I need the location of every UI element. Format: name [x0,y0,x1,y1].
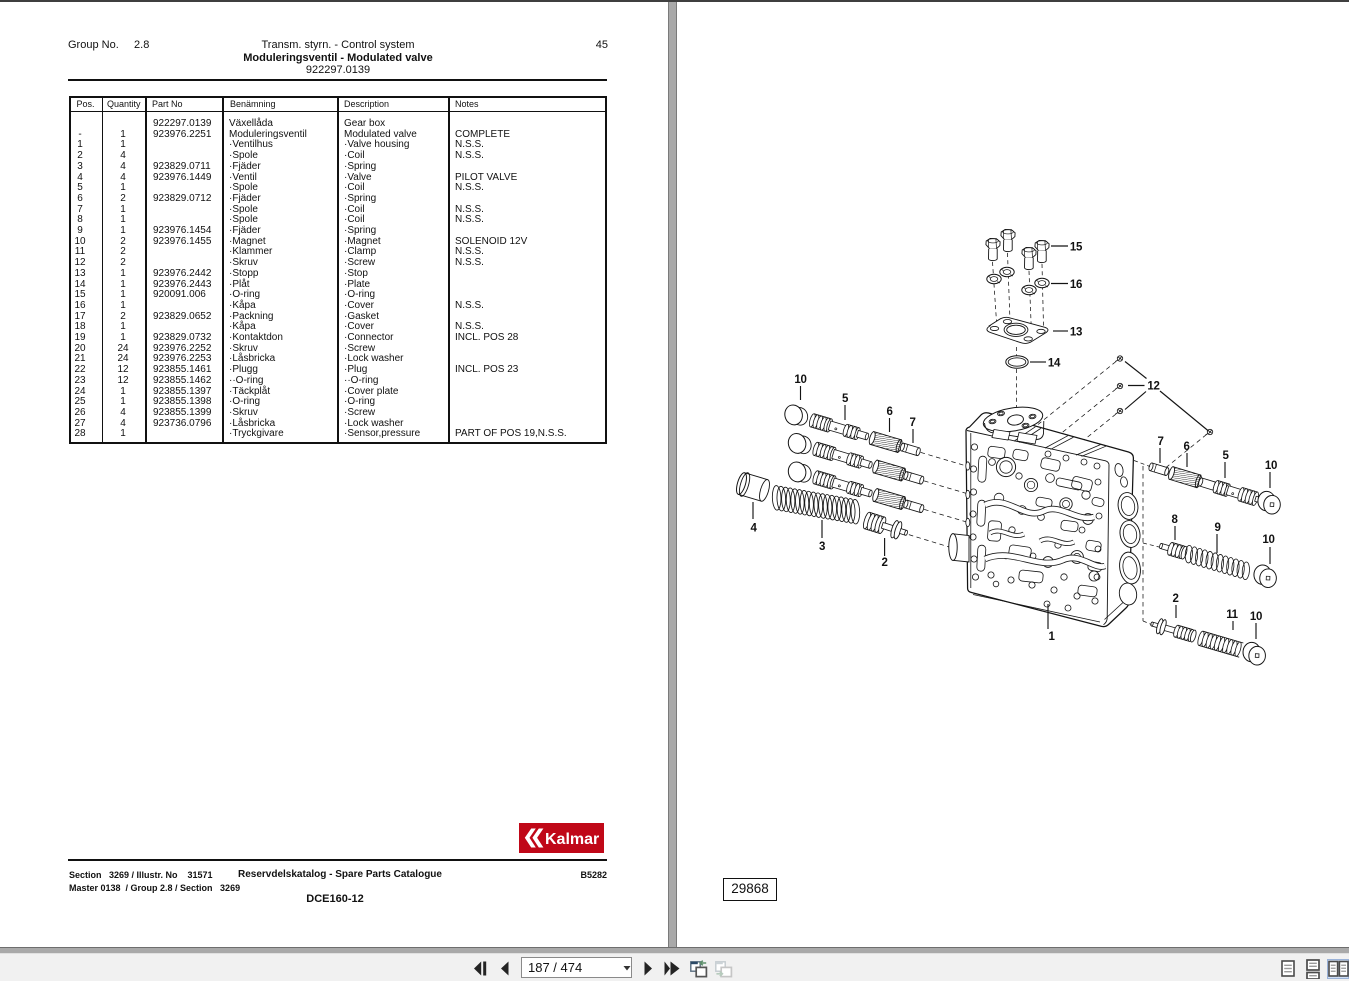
svg-text:9: 9 [1214,522,1220,534]
svg-text:3: 3 [819,541,825,553]
svg-text:12: 12 [1147,381,1159,393]
svg-text:6: 6 [886,406,892,418]
svg-text:10: 10 [1262,534,1274,546]
svg-text:2: 2 [1172,593,1178,605]
svg-text:10: 10 [794,374,806,386]
svg-text:15: 15 [1070,242,1083,254]
svg-text:7: 7 [1157,436,1163,448]
svg-text:8: 8 [1171,514,1178,526]
svg-text:6: 6 [1183,441,1189,453]
svg-text:7: 7 [909,417,915,429]
svg-text:14: 14 [1048,358,1061,370]
svg-text:2: 2 [881,557,887,569]
svg-text:Kalmar: Kalmar [545,830,599,847]
svg-text:10: 10 [1250,611,1262,623]
svg-text:13: 13 [1070,327,1082,339]
svg-text:16: 16 [1070,279,1082,291]
svg-text:10: 10 [1265,460,1277,472]
svg-text:1: 1 [1048,631,1055,643]
svg-text:5: 5 [842,393,849,405]
svg-text:5: 5 [1222,450,1229,462]
svg-text:4: 4 [750,523,757,535]
svg-text:11: 11 [1226,609,1238,621]
